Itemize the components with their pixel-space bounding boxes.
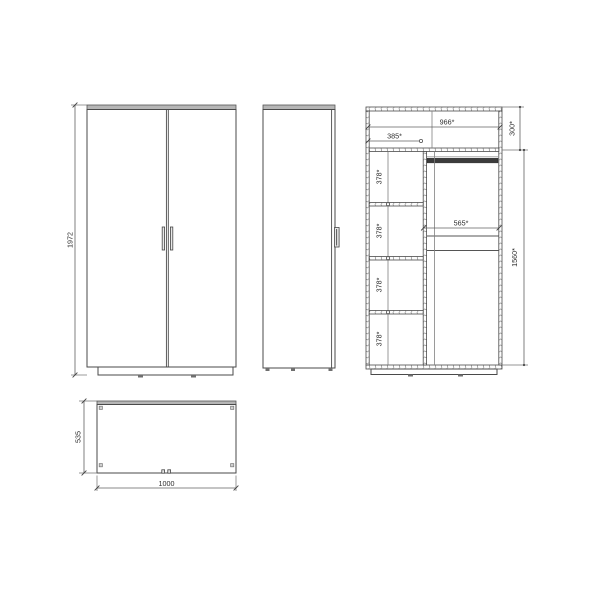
plan-corner-block	[99, 406, 102, 409]
internal-plinth	[371, 369, 497, 375]
hanging-height-dimension: 1560*	[502, 149, 528, 366]
plan-back-panel	[97, 401, 236, 405]
side-foot-back	[266, 368, 270, 371]
side-body	[263, 110, 335, 369]
internal-right-side-panel	[499, 111, 502, 365]
hanging-rod	[427, 158, 498, 163]
plan-width-dimension: 1000	[95, 476, 239, 492]
interior-width-label: 966*	[440, 118, 455, 127]
dimension-dot	[519, 149, 521, 151]
internal-left-side-panel	[366, 111, 369, 365]
hanging-width-label: 565*	[454, 218, 469, 227]
shelf-node-marker	[386, 203, 389, 206]
front-plinth	[98, 367, 233, 375]
internal-shelf-3	[369, 311, 423, 315]
front-left-door-handle	[162, 227, 164, 250]
cell-height-label-4: 378*	[375, 331, 384, 346]
internal-shelf-1	[369, 203, 423, 207]
plan-depth-label: 535	[74, 431, 83, 443]
plan-handle-right	[168, 470, 171, 473]
internal-top-shelf	[369, 148, 499, 152]
wardrobe-technical-drawing: 1972	[0, 0, 600, 600]
left-column-width-dimension: 385*	[366, 131, 423, 143]
plan-corner-block	[99, 464, 102, 467]
internal-shelf-2	[369, 257, 423, 261]
plan-corner-block	[231, 464, 234, 467]
front-right-door-handle	[170, 227, 172, 250]
plan-corner-block	[231, 406, 234, 409]
front-height-label: 1972	[66, 232, 75, 248]
left-column-width-label: 385*	[387, 131, 402, 140]
top-section-height-label: 300*	[508, 121, 517, 136]
internal-top-panel	[366, 107, 502, 111]
plan-view: 535 1000	[74, 399, 239, 491]
internal-view: 966* 385* 378* 378* 378* 378* 565* 300*	[366, 106, 528, 377]
front-view: 1972	[66, 103, 237, 378]
side-top-panel	[263, 105, 335, 110]
front-foot-right	[191, 375, 196, 378]
hanging-height-label: 1560*	[510, 248, 519, 267]
shelf-node-marker	[386, 257, 389, 260]
front-body	[87, 110, 236, 368]
side-foot-middle	[291, 368, 295, 371]
top-section-height-dimension: 300*	[502, 106, 528, 151]
internal-partition	[423, 152, 426, 366]
blueprint-canvas: 1972	[0, 0, 600, 600]
shelf-node-marker	[386, 311, 389, 314]
dimension-node	[419, 139, 422, 142]
side-foot-front	[329, 368, 333, 371]
front-height-dimension: 1972	[66, 103, 88, 378]
cell-height-label-2: 378*	[375, 223, 384, 238]
internal-foot-left	[408, 375, 413, 377]
dimension-dot	[523, 149, 525, 151]
internal-bottom-panel	[366, 365, 502, 369]
side-view	[263, 105, 339, 371]
interior-width-dimension: 966*	[366, 118, 503, 130]
plan-body	[97, 405, 236, 474]
plan-depth-dimension: 535	[74, 399, 98, 476]
internal-foot-right	[458, 375, 463, 377]
front-top-panel	[87, 105, 236, 110]
front-foot-left	[138, 375, 143, 378]
dimension-dot	[519, 106, 521, 108]
plan-width-label: 1000	[159, 479, 175, 488]
cell-height-label-1: 378*	[375, 169, 384, 184]
cell-height-label-3: 378*	[375, 277, 384, 292]
hanging-width-dimension: 565*	[421, 218, 501, 230]
dimension-dot	[523, 364, 525, 366]
plan-handle-left	[162, 470, 165, 473]
